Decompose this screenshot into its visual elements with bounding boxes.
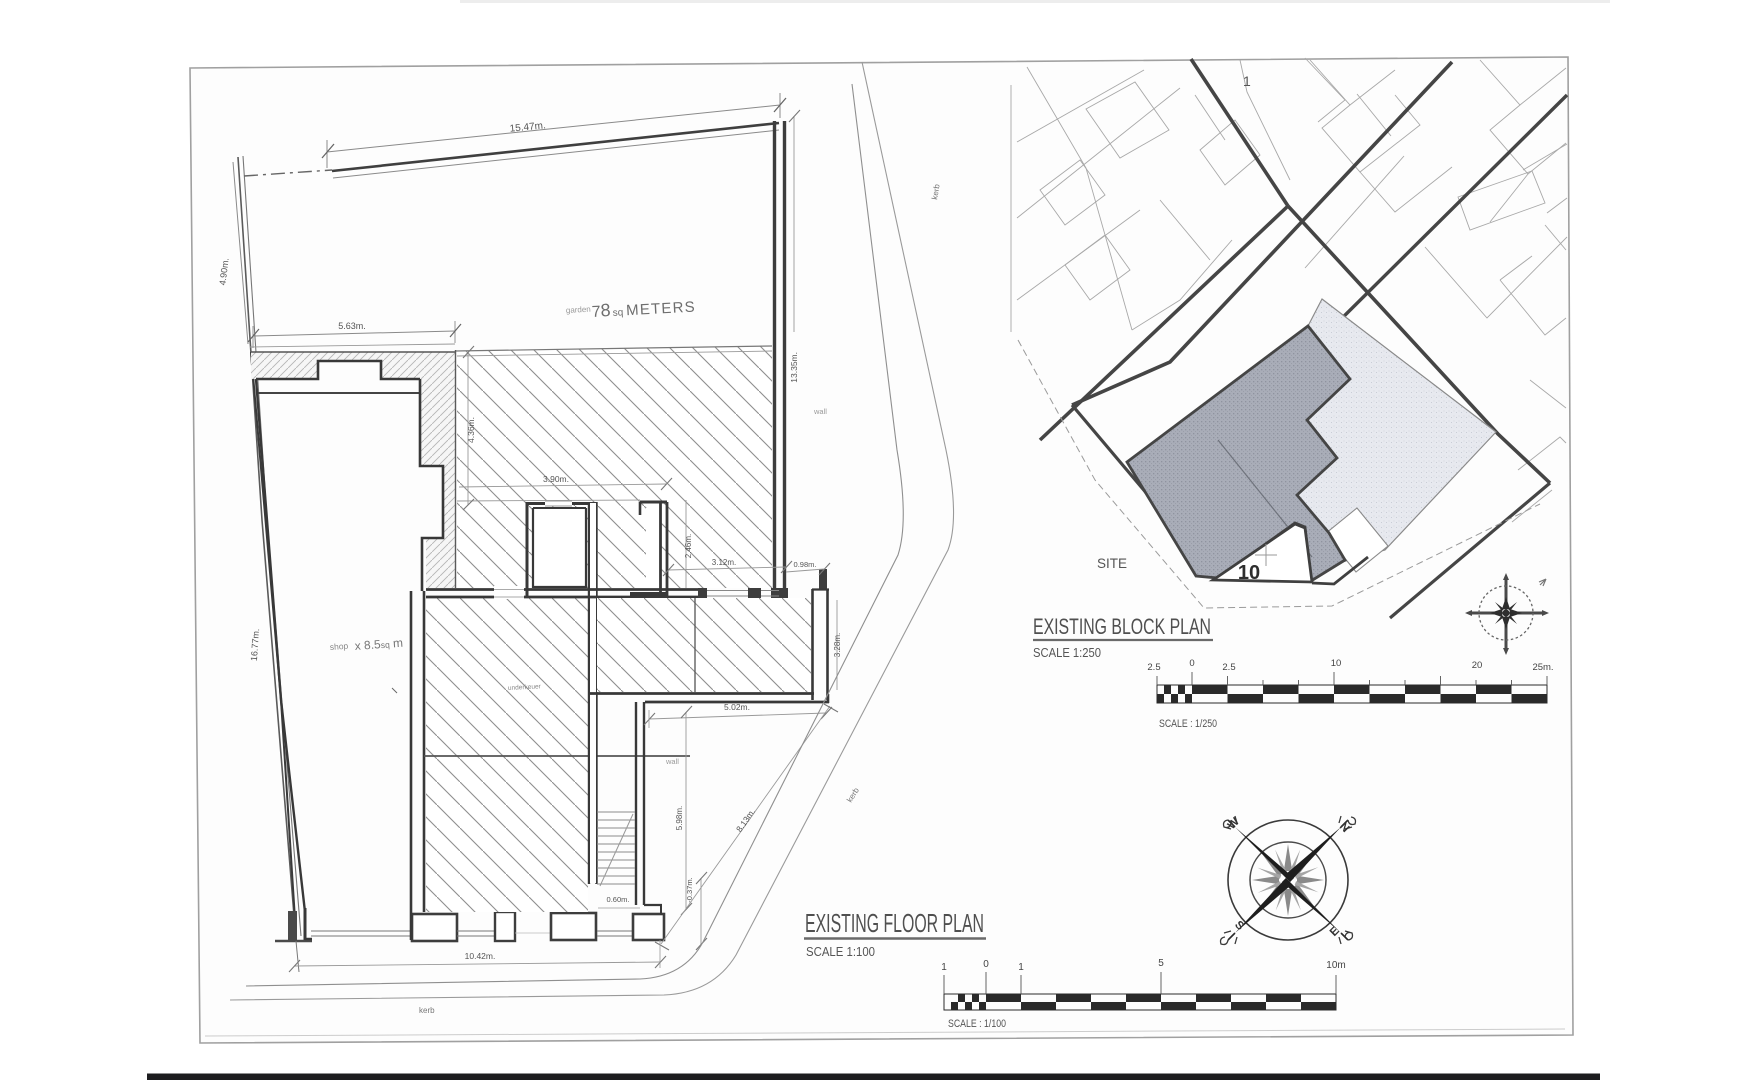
- svg-text:0: 0: [1189, 658, 1194, 669]
- svg-text:1: 1: [1018, 962, 1024, 973]
- svg-text:10m: 10m: [1326, 960, 1345, 971]
- svg-text:SCALE : 1/250: SCALE : 1/250: [1159, 718, 1217, 730]
- svg-text:-0.37m.: -0.37m.: [685, 877, 694, 902]
- svg-text:1: 1: [941, 962, 947, 973]
- svg-text:2.5: 2.5: [1222, 662, 1235, 673]
- svg-text:garden: garden: [566, 305, 591, 315]
- svg-text:10: 10: [1331, 658, 1342, 669]
- svg-text:5: 5: [1158, 958, 1164, 969]
- svg-text:shop: shop: [329, 641, 348, 652]
- svg-text:3.12m.: 3.12m.: [712, 558, 736, 567]
- svg-text:SCALE 1:250: SCALE 1:250: [1033, 645, 1101, 660]
- svg-text:kerb: kerb: [419, 1006, 435, 1015]
- svg-text:3.28m.: 3.28m.: [833, 633, 842, 657]
- svg-text:13.35m.: 13.35m.: [789, 352, 799, 383]
- svg-text:10.42m.: 10.42m.: [465, 951, 496, 961]
- svg-text:SCALE 1:100: SCALE 1:100: [806, 944, 875, 959]
- svg-text:SCALE : 1/100: SCALE : 1/100: [948, 1018, 1006, 1030]
- svg-text:20: 20: [1472, 660, 1483, 671]
- svg-text:5.63m.: 5.63m.: [338, 321, 366, 331]
- svg-text:25m.: 25m.: [1532, 662, 1553, 673]
- svg-text:4.36m.: 4.36m.: [466, 417, 476, 443]
- svg-text:SITE: SITE: [1097, 555, 1127, 571]
- svg-text:wall: wall: [665, 757, 679, 766]
- svg-text:EXISTING BLOCK PLAN: EXISTING BLOCK PLAN: [1033, 614, 1211, 639]
- svg-text:2.5: 2.5: [1147, 662, 1160, 673]
- svg-text:1: 1: [1243, 73, 1251, 89]
- svg-text:0.60m.: 0.60m.: [607, 895, 630, 904]
- svg-text:0: 0: [983, 959, 989, 970]
- svg-text:5.98m.: 5.98m.: [675, 806, 684, 830]
- svg-text:5.02m.: 5.02m.: [724, 702, 750, 712]
- svg-text:EXISTING FLOOR PLAN: EXISTING FLOOR PLAN: [805, 908, 984, 938]
- svg-text:2.46m.: 2.46m.: [684, 534, 693, 558]
- svg-text:3.90m.: 3.90m.: [543, 474, 569, 484]
- svg-text:0.98m.: 0.98m.: [794, 560, 817, 569]
- svg-text:10: 10: [1238, 562, 1260, 584]
- svg-text:wall: wall: [813, 407, 827, 416]
